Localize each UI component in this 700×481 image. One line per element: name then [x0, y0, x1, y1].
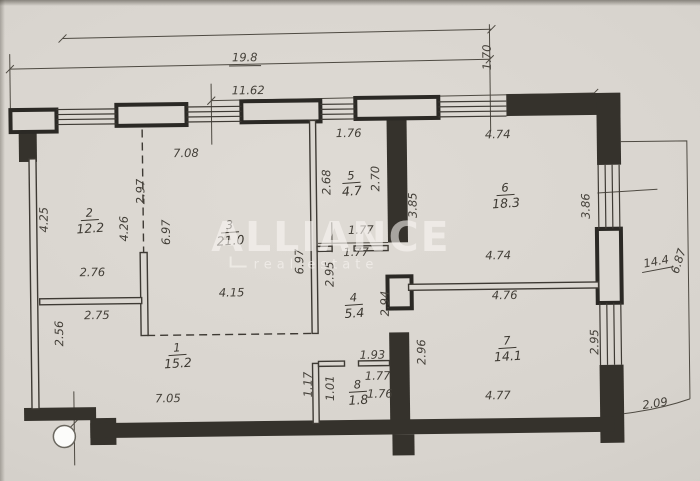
dim-1-76-b: 1.76	[367, 386, 393, 400]
room-area: 15.2	[164, 356, 193, 371]
dim-7-05: 7.05	[155, 391, 181, 405]
dim-19-8: 19.8	[229, 50, 261, 66]
solid-walls	[18, 93, 624, 460]
room-label-1: 1 15.2	[162, 338, 192, 371]
floorplan-photo: 1 15.2 2 12.2 3 21.0 4 5.4 5 4.7 6 18.3 …	[0, 0, 700, 481]
watermark-brand: ALLIANCE	[211, 213, 450, 261]
dim-4-26: 4.26	[117, 216, 131, 242]
dim-1-93: 1.93	[360, 348, 386, 362]
dim-4-15: 4.15	[219, 285, 245, 299]
dim-7-08: 7.08	[173, 146, 199, 160]
dim-2-68: 2.68	[319, 169, 333, 195]
room-number: 8	[348, 378, 366, 393]
dim-2-76: 2.76	[79, 265, 105, 279]
room-number: 2	[80, 206, 98, 221]
dim-4-77: 4.77	[485, 388, 511, 402]
dim-4-25: 4.25	[37, 207, 51, 233]
dim-6-97-a: 6.97	[159, 219, 173, 245]
dim-2-56: 2.56	[52, 321, 66, 347]
dim-2-97: 2.97	[133, 179, 147, 205]
dim-4-74-bot: 4.74	[485, 248, 511, 262]
room-area: 4.7	[342, 184, 363, 198]
room-number: 1	[168, 341, 186, 356]
dim-1-01: 1.01	[323, 375, 337, 401]
room-number: 4	[344, 291, 362, 306]
dim-2-75: 2.75	[84, 308, 110, 322]
punch-hole-dot	[53, 425, 75, 447]
watermark-tagline-text: real estate	[254, 258, 379, 273]
dim-1-17: 1.17	[301, 372, 315, 398]
room-label-6: 6 18.3	[491, 178, 521, 211]
room-number: 6	[496, 181, 514, 196]
room-area: 12.2	[76, 221, 105, 236]
dim-4-74-top: 4.74	[485, 127, 511, 141]
dim-2-95-b: 2.95	[587, 329, 601, 355]
dim-2-94: 2.94	[378, 291, 392, 317]
watermark-tagline: real estate	[230, 257, 379, 274]
balcony-outline	[621, 141, 690, 414]
watermark-bracket-icon	[230, 257, 247, 268]
dim-1-70: 1.70	[480, 44, 494, 70]
dim-4-76: 4.76	[492, 288, 518, 302]
room-label-7: 7 14.1	[492, 331, 522, 364]
dim-1-77-c: 1.77	[365, 369, 391, 383]
room-area: 18.3	[492, 196, 521, 211]
dim-2-96: 2.96	[414, 339, 428, 365]
room-number: 7	[498, 334, 516, 349]
dim-3-86: 3.86	[578, 193, 592, 219]
room-number: 5	[342, 169, 360, 184]
room-area: 14.1	[494, 349, 523, 364]
dim-11-62: 11.62	[232, 83, 265, 97]
room-label-4: 4 5.4	[343, 288, 365, 320]
room-area: 1.8	[348, 393, 369, 407]
dim-2-70: 2.70	[368, 166, 382, 192]
room-label-2: 2 12.2	[75, 203, 105, 236]
room-label-5: 5 4.7	[340, 166, 362, 198]
room-area: 5.4	[344, 306, 365, 320]
dim-1-76-top: 1.76	[336, 126, 362, 140]
